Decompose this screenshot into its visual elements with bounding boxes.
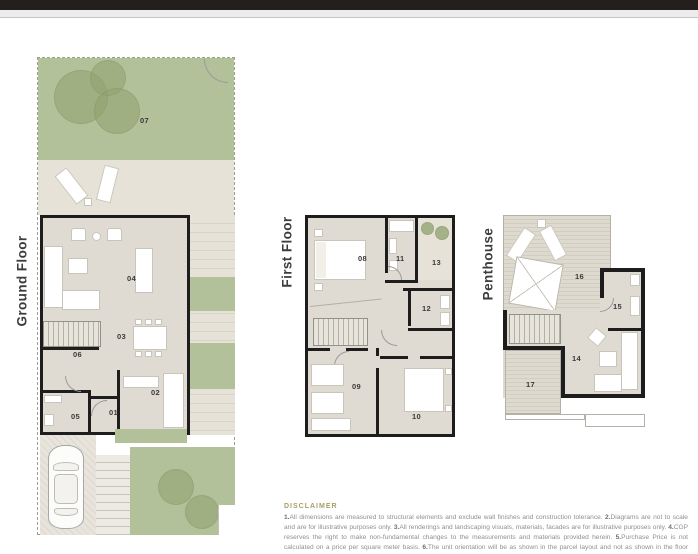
armchair bbox=[107, 228, 122, 241]
penthouse-label: Penthouse bbox=[481, 228, 496, 301]
shower bbox=[630, 274, 640, 286]
sink bbox=[630, 296, 640, 316]
disclaimer-body: 1.All dimensions are measured to structu… bbox=[284, 513, 688, 554]
balcony: 13 bbox=[418, 218, 452, 280]
sink bbox=[389, 238, 397, 254]
roof-terrace: 16 bbox=[503, 215, 611, 315]
interior-wall bbox=[600, 268, 604, 298]
room-number-09: 09 bbox=[352, 382, 361, 391]
sun-lounger bbox=[539, 225, 567, 262]
disclaimer-heading: DISCLAIMER bbox=[284, 503, 338, 510]
kitchen-counter bbox=[163, 373, 184, 428]
first-floor-label: First Floor bbox=[280, 216, 295, 287]
interior-wall bbox=[415, 218, 418, 283]
dining-chair bbox=[145, 351, 152, 357]
tree-icon bbox=[185, 495, 219, 529]
round-table bbox=[92, 232, 101, 241]
side-terraces bbox=[190, 215, 235, 435]
car-rear-window bbox=[54, 508, 78, 516]
bed-pillows bbox=[316, 242, 326, 278]
room-number-06: 06 bbox=[73, 350, 82, 359]
sofa-section bbox=[621, 332, 638, 390]
armchair bbox=[71, 228, 86, 241]
interior-wall bbox=[420, 356, 452, 359]
room-number-13: 13 bbox=[432, 258, 441, 267]
ground-floor-plan: 07 04 06 bbox=[37, 57, 235, 535]
interior-wall bbox=[641, 268, 645, 398]
window-top-strip bbox=[0, 10, 698, 18]
room-number-04: 04 bbox=[127, 274, 136, 283]
floorplan-page: Ground Floor 07 bbox=[0, 0, 698, 554]
sofa-section bbox=[594, 374, 622, 392]
car bbox=[48, 445, 84, 529]
room-number-11: 11 bbox=[396, 254, 405, 263]
car-windshield bbox=[53, 462, 79, 471]
interior-wall bbox=[561, 394, 645, 398]
interior-wall bbox=[376, 368, 379, 434]
first-floor-plan: 13 08 11 12 bbox=[305, 215, 455, 437]
garden-pad bbox=[218, 505, 236, 535]
coffee-table bbox=[68, 258, 88, 274]
nightstand bbox=[314, 229, 323, 237]
interior-wall bbox=[385, 218, 388, 273]
coffee-table bbox=[599, 351, 617, 367]
door-swing-arc bbox=[388, 266, 402, 280]
toilet bbox=[44, 414, 54, 426]
skylight-pyramid bbox=[508, 256, 564, 312]
room-number-02: 02 bbox=[151, 388, 160, 397]
window-top-bar bbox=[0, 0, 698, 10]
ground-floor-house: 04 06 03 02 05 01 bbox=[40, 215, 190, 435]
rear-patio bbox=[38, 160, 234, 215]
tree-icon bbox=[94, 88, 140, 134]
gate-swing-arc bbox=[204, 59, 228, 83]
plant-icon bbox=[435, 226, 449, 240]
side-planter-upper bbox=[190, 277, 235, 311]
kitchen-planter bbox=[115, 429, 187, 443]
sofa-section bbox=[44, 246, 63, 308]
disclaimer-item-1-text: All dimensions are measured to structura… bbox=[290, 514, 606, 521]
bed bbox=[404, 368, 444, 412]
room-number-07: 07 bbox=[140, 116, 149, 125]
disclaimer-item-3-text: All renderings and landscaping visuals, … bbox=[399, 524, 668, 531]
room-number-05: 05 bbox=[71, 412, 80, 421]
interior-wall bbox=[608, 328, 641, 331]
single-bed bbox=[311, 364, 344, 386]
sun-lounger bbox=[96, 165, 119, 204]
interior-wall bbox=[43, 347, 99, 350]
door-swing-arc bbox=[381, 330, 397, 346]
plant-icon bbox=[421, 222, 434, 235]
dining-chair bbox=[155, 351, 162, 357]
staircase bbox=[43, 321, 101, 347]
terrace-edge bbox=[585, 414, 645, 427]
dining-chair bbox=[155, 319, 162, 325]
interior-wall bbox=[503, 310, 507, 350]
room-number-16: 16 bbox=[575, 272, 584, 281]
front-garden bbox=[130, 447, 235, 535]
shower bbox=[389, 220, 414, 232]
tv-unit bbox=[135, 248, 153, 293]
interior-wall bbox=[385, 280, 418, 283]
entry-steps bbox=[96, 455, 130, 535]
nightstand bbox=[314, 283, 323, 291]
sofa-section bbox=[62, 290, 100, 310]
nightstand bbox=[445, 405, 452, 412]
interior-wall bbox=[43, 390, 91, 393]
sink bbox=[440, 295, 450, 309]
dining-chair bbox=[145, 319, 152, 325]
door-swing-arc bbox=[91, 400, 107, 416]
room-number-12: 12 bbox=[422, 304, 431, 313]
kitchen-island bbox=[123, 376, 159, 388]
terrace-edge bbox=[505, 414, 585, 420]
single-bed bbox=[311, 392, 344, 414]
interior-wall bbox=[408, 291, 411, 326]
penthouse-plan: 16 15 14 17 bbox=[500, 210, 658, 448]
room-number-10: 10 bbox=[412, 412, 421, 421]
interior-wall bbox=[308, 348, 330, 351]
room-number-17: 17 bbox=[526, 380, 535, 389]
void-line bbox=[310, 298, 382, 307]
staircase bbox=[509, 314, 561, 344]
vanity-sink bbox=[44, 395, 62, 403]
dining-chair bbox=[135, 319, 142, 325]
interior-wall bbox=[408, 328, 452, 331]
nightstand bbox=[445, 368, 452, 375]
interior-wall bbox=[117, 370, 120, 432]
room-number-15: 15 bbox=[613, 302, 622, 311]
back-garden: 07 bbox=[38, 58, 234, 160]
interior-wall bbox=[380, 356, 408, 359]
room-number-03: 03 bbox=[117, 332, 126, 341]
interior-wall bbox=[561, 350, 565, 398]
staircase bbox=[313, 318, 368, 346]
interior-wall bbox=[346, 348, 368, 351]
side-table bbox=[537, 219, 546, 228]
dining-table bbox=[133, 326, 167, 350]
wardrobe bbox=[311, 418, 351, 431]
driveway bbox=[40, 435, 96, 535]
toilet bbox=[440, 312, 450, 326]
dining-chair bbox=[135, 351, 142, 357]
room-number-01: 01 bbox=[109, 408, 118, 417]
interior-wall bbox=[376, 348, 379, 356]
ground-floor-label: Ground Floor bbox=[15, 235, 30, 326]
side-table bbox=[84, 198, 92, 206]
room-number-08: 08 bbox=[358, 254, 367, 263]
room-number-14: 14 bbox=[572, 354, 581, 363]
interior-wall bbox=[88, 396, 120, 399]
car-roof bbox=[54, 474, 78, 504]
interior-wall bbox=[600, 268, 645, 272]
side-planter-lower bbox=[190, 343, 235, 389]
